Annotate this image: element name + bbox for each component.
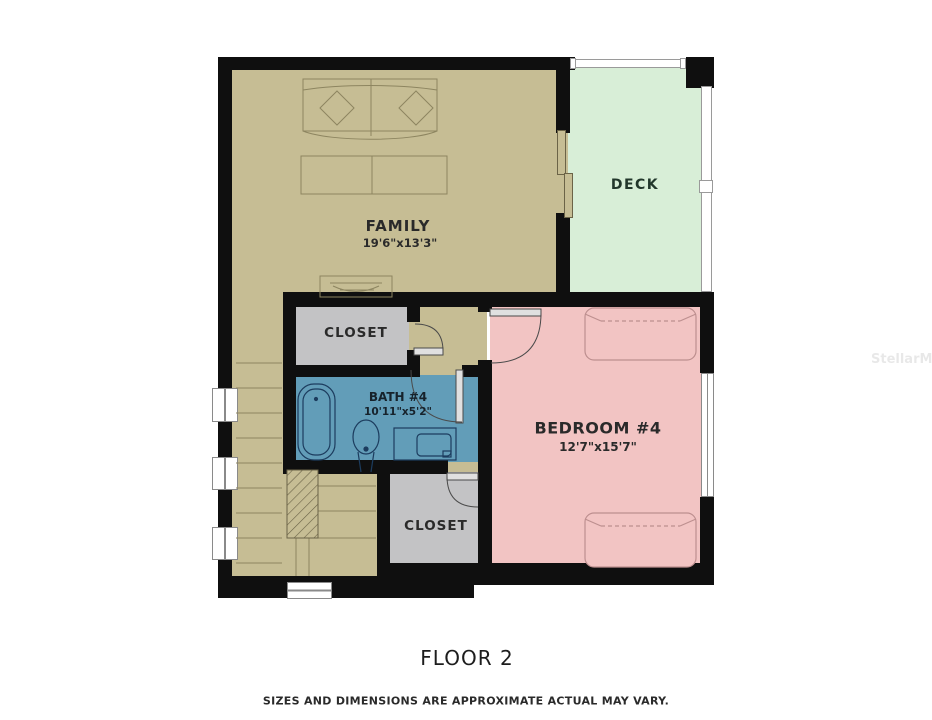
label-bedroom4: BEDROOM #4 [535,419,662,438]
label-family-dims: 19'6"x13'3" [363,236,437,250]
label-bedroom4-dims: 12'7"x15'7" [559,440,637,454]
mls-watermark: StellarMLS [871,352,932,367]
label-closet-lower: CLOSET [404,518,468,534]
window-bedroom-right [701,373,714,497]
window-left-2 [212,457,238,490]
label-bath4-dims: 10'11"x5'2" [364,406,432,418]
window-bottom [287,582,332,599]
deck-railing-top [572,59,686,68]
wall-left [218,57,232,578]
deck-railing-top-cap-left [570,58,576,69]
wall-mid-horizontal [284,292,714,307]
label-bath4: BATH #4 [369,390,427,404]
sliding-door-panel-1 [557,130,566,175]
wall-bedroom-right-upper [700,292,714,373]
window-left-3 [212,527,238,560]
wall-bottom-right [388,563,714,585]
wall-bedroom-right-lower [700,497,714,585]
floor-plan-page: FAMILY 19'6"x13'3" DECK BEDROOM #4 12'7"… [0,0,932,720]
sliding-door-panel-2 [564,173,573,218]
deck-railing-top-cap-right [680,58,686,69]
wall-bedroom-left-lower [478,360,492,585]
floor-title: FLOOR 2 [420,646,513,670]
wall-bath-bottom [283,460,448,474]
label-deck: DECK [611,177,659,193]
wall-closet-bath-left [283,292,296,472]
deck-railing-marker [699,180,713,193]
deck-corner-post [686,57,714,88]
label-closet-upper: CLOSET [324,325,388,341]
wall-bath-top-b [462,365,478,377]
room-family-floor [225,60,570,300]
wall-family-deck-upper [556,57,570,133]
disclaimer-text: SIZES AND DIMENSIONS ARE APPROXIMATE ACT… [263,695,669,708]
wall-bedroom-left-upper [478,292,492,312]
room-bath4-floor [294,375,480,462]
label-family: FAMILY [366,217,431,235]
wall-closet-upper-right-a [407,307,420,322]
wall-top [218,57,575,70]
window-left-1 [212,388,238,422]
wall-bath-top-a [283,365,412,377]
